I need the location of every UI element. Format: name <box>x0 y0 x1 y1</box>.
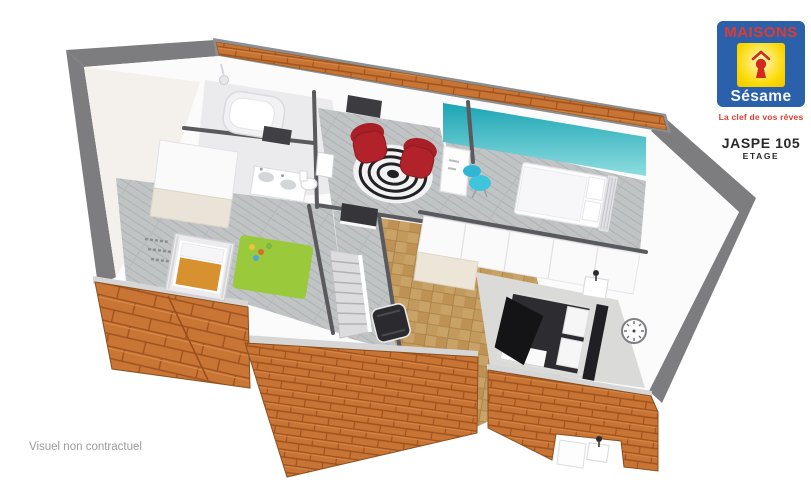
crib <box>165 233 234 301</box>
table-lamp <box>596 436 602 442</box>
brand-tagline: La clef de vos rêves <box>716 112 806 122</box>
brand-logo: MAISONS Sésame <box>717 21 805 107</box>
brand-sub-name: Sésame <box>730 88 791 105</box>
black-armchair <box>370 302 411 343</box>
pillow <box>563 306 590 337</box>
plan-title: JASPE 105 <box>716 135 806 151</box>
pillow <box>582 201 601 222</box>
floor-plan-visual: MAISONS Sésame La clef de vos rêves JASP… <box>0 0 811 480</box>
pillow <box>556 338 583 369</box>
green-rug <box>232 235 314 300</box>
wardrobe <box>150 140 238 228</box>
roof-middle <box>245 343 478 477</box>
brand-name: MAISONS <box>724 24 798 41</box>
bathroom-door <box>316 152 334 178</box>
brand-block: MAISONS Sésame La clef de vos rêves JASP… <box>716 21 806 161</box>
pillow <box>586 177 605 200</box>
keyhole-under-roof-icon <box>737 43 785 87</box>
floor-plan-3d <box>0 0 811 480</box>
disclaimer-caption: Visuel non contractuel <box>29 441 142 453</box>
master-door <box>557 440 586 468</box>
nightstand-bottom <box>557 436 609 468</box>
table-lamp <box>593 270 599 276</box>
plan-subtitle: ETAGE <box>716 151 806 161</box>
wall-clock <box>622 319 646 343</box>
